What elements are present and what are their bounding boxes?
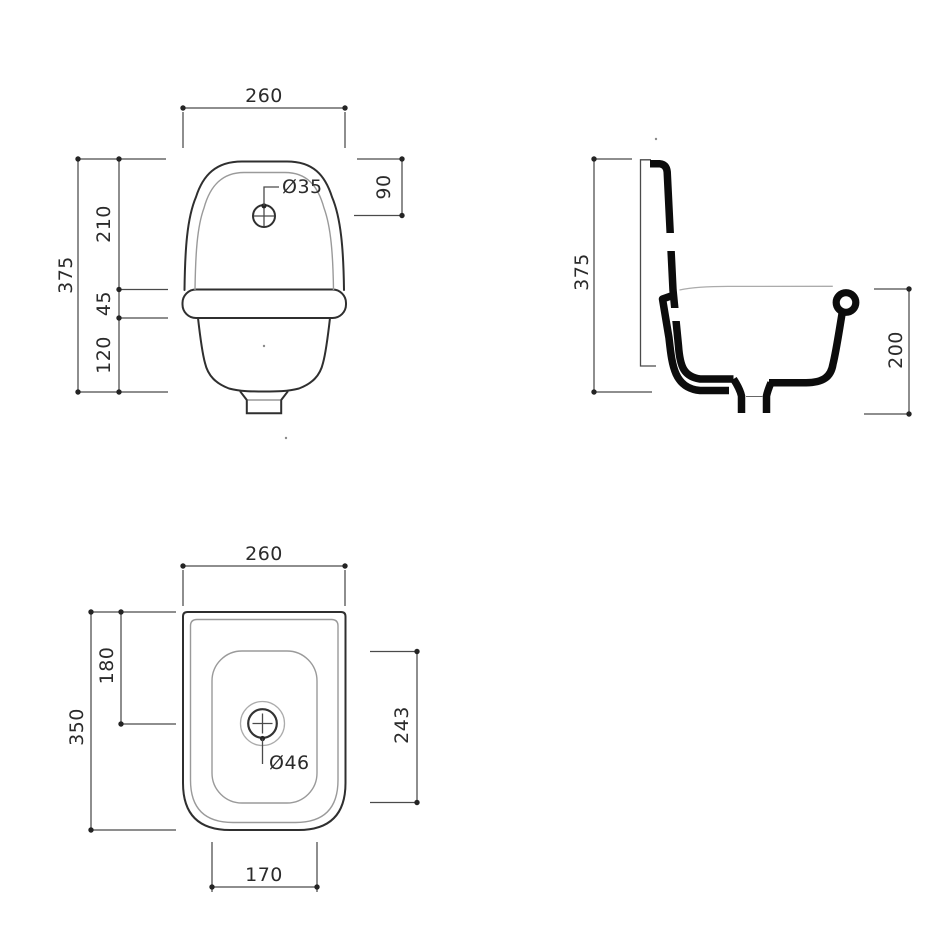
dim-endpoint: [116, 389, 121, 394]
plan-dim-bowl-width: 170: [209, 842, 319, 892]
front-dim-height-chain: 375 210 45 120: [55, 156, 168, 394]
leader-line: [264, 187, 279, 206]
dim-endpoint: [118, 609, 123, 614]
dim-label-plan-bowl-depth: 243: [391, 706, 413, 744]
stray-mark: [285, 437, 287, 439]
dim-label-lower-height: 120: [93, 336, 115, 374]
stray-mark: [263, 345, 265, 347]
front-lower-bowl-outline: [198, 318, 330, 392]
side-front-wall-section: [769, 311, 843, 383]
technical-drawing-sheet: 260 90 375 210 45 120 Ø35: [0, 0, 950, 950]
front-drain-spout: [241, 392, 288, 414]
plan-outer-outline: [183, 612, 346, 830]
dim-label-drain-offset: 180: [96, 647, 118, 685]
dim-label-side-total-height: 375: [571, 253, 593, 291]
dim-endpoint: [88, 609, 93, 614]
dim-endpoint: [399, 213, 404, 218]
dim-endpoint: [118, 721, 123, 726]
front-dim-tap-offset: 90: [354, 156, 405, 218]
dim-label-bowl-depth: 200: [885, 331, 907, 369]
dim-endpoint: [209, 884, 214, 889]
dim-endpoint: [342, 105, 347, 110]
dim-label-plan-bowl-width: 170: [245, 864, 283, 886]
dim-endpoint: [75, 389, 80, 394]
dim-endpoint: [414, 649, 419, 654]
plan-dim-width: 260: [180, 543, 347, 606]
stray-mark: [655, 138, 657, 140]
side-outlet-left-wall: [734, 379, 742, 413]
front-dim-width: 260: [180, 85, 347, 148]
dim-endpoint: [591, 156, 596, 161]
dim-endpoint: [116, 156, 121, 161]
front-tap-hole-callout: Ø35: [261, 176, 322, 208]
dim-endpoint: [906, 411, 911, 416]
drain-diameter-label: Ø46: [269, 752, 310, 774]
dim-endpoint: [75, 156, 80, 161]
side-rim-bead: [836, 293, 856, 313]
dim-endpoint: [88, 827, 93, 832]
dim-endpoint: [906, 286, 911, 291]
plan-view: [183, 612, 346, 830]
tap-hole-diameter-label: Ø35: [282, 176, 323, 198]
side-dim-bowl-depth: 200: [864, 286, 912, 416]
dim-label-plan-width: 260: [245, 543, 283, 565]
dim-label-plan-total-depth: 350: [66, 708, 88, 746]
plan-dim-depth-chain: 350 180: [66, 609, 176, 832]
dim-label-front-total-height: 375: [55, 256, 77, 294]
front-rim-band: [183, 290, 347, 319]
dim-label-upper-height: 210: [93, 205, 115, 243]
dim-endpoint: [116, 315, 121, 320]
fixing-slot: [667, 233, 676, 251]
dim-label-tap-offset: 90: [373, 174, 395, 199]
dim-label-front-width: 260: [245, 85, 283, 107]
dim-endpoint: [399, 156, 404, 161]
fixing-slot: [671, 308, 681, 321]
sink-dimension-drawing: 260 90 375 210 45 120 Ø35: [0, 0, 950, 950]
dim-endpoint: [180, 563, 185, 568]
side-rim-line: [680, 286, 833, 290]
dim-endpoint: [116, 287, 121, 292]
side-splashback-section: [650, 164, 734, 379]
dim-endpoint: [591, 389, 596, 394]
plan-dim-bowl-depth: 243: [370, 649, 420, 805]
side-outlet-right-wall: [767, 383, 772, 413]
side-wall-panel: [641, 160, 657, 366]
dim-endpoint: [342, 563, 347, 568]
dim-endpoint: [414, 800, 419, 805]
dim-endpoint: [180, 105, 185, 110]
side-view: [641, 138, 856, 413]
dim-endpoint: [314, 884, 319, 889]
dim-label-rim-height: 45: [93, 291, 115, 316]
